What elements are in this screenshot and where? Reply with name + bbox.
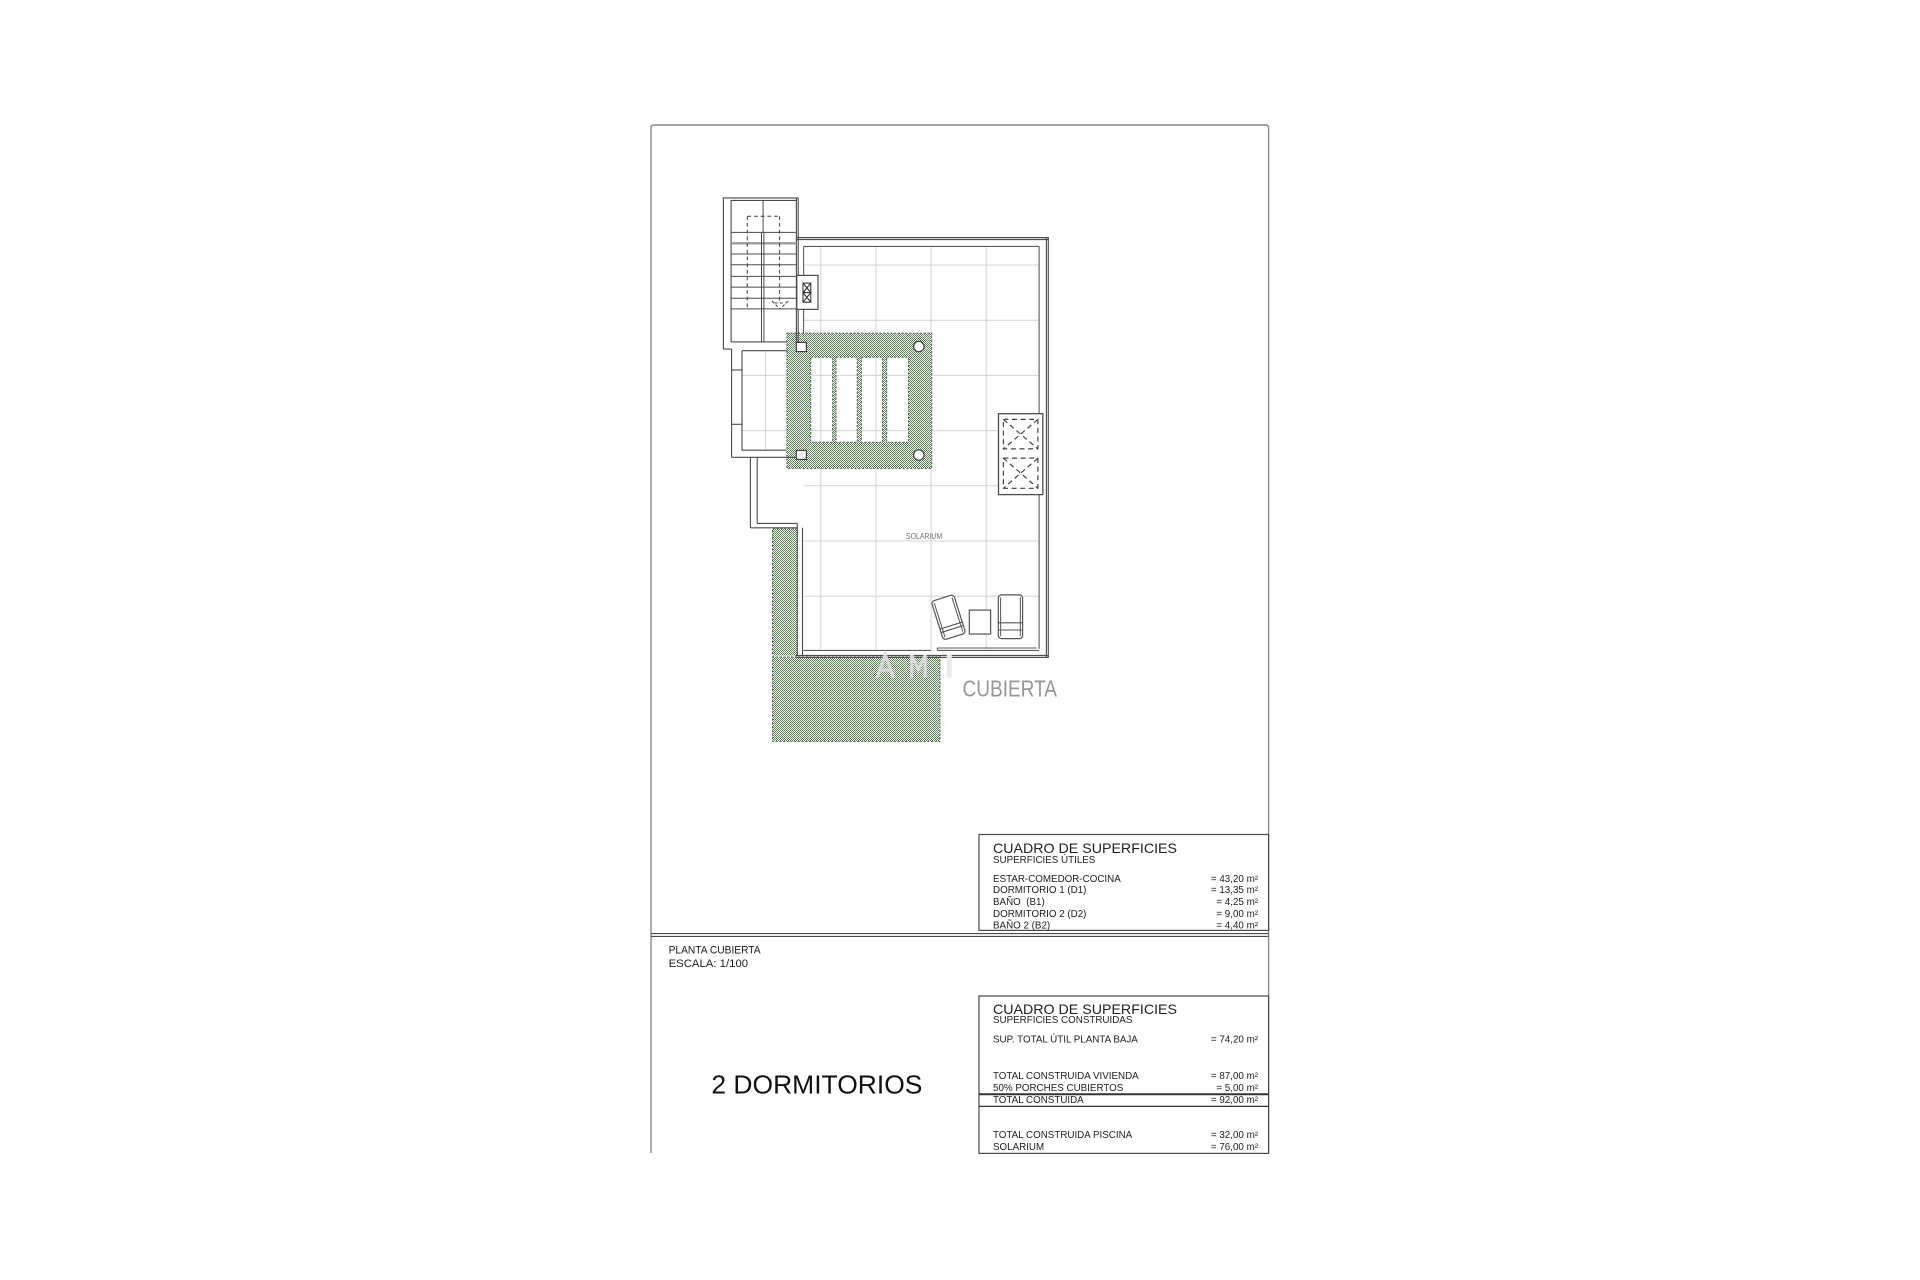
svg-text:50% PORCHES CUBIERTOS: 50% PORCHES CUBIERTOS <box>993 1083 1124 1094</box>
svg-text:= 43,20 m²: = 43,20 m² <box>1211 874 1259 885</box>
svg-text:SOLARIUM: SOLARIUM <box>993 1142 1044 1153</box>
svg-text:ESTAR-COMEDOR-COCINA: ESTAR-COMEDOR-COCINA <box>993 874 1121 885</box>
svg-text:BAÑO 2 (B2): BAÑO 2 (B2) <box>993 921 1050 932</box>
svg-text:BAÑO (B1): BAÑO (B1) <box>993 897 1045 908</box>
svg-text:SOLARIUM: SOLARIUM <box>906 532 942 541</box>
svg-text:DORMITORIO 1 (D1): DORMITORIO 1 (D1) <box>993 885 1086 896</box>
svg-text:PLANTA CUBIERTA: PLANTA CUBIERTA <box>669 945 761 957</box>
svg-text:TOTAL CONSTUIDA: TOTAL CONSTUIDA <box>993 1095 1084 1106</box>
svg-text:TOTAL CONSTRUIDA PISCINA: TOTAL CONSTRUIDA PISCINA <box>993 1130 1133 1141</box>
svg-text:2 DORMITORIOS: 2 DORMITORIOS <box>711 1070 922 1100</box>
svg-text:CUADRO DE SUPERFICIES: CUADRO DE SUPERFICIES <box>993 841 1177 856</box>
svg-text:SUPERFICIES CONSTRUIDAS: SUPERFICIES CONSTRUIDAS <box>993 1015 1133 1026</box>
svg-text:= 32,00 m²: = 32,00 m² <box>1211 1130 1259 1141</box>
svg-text:= 9,00 m²: = 9,00 m² <box>1216 909 1258 920</box>
svg-text:= 87,00 m²: = 87,00 m² <box>1211 1071 1259 1082</box>
svg-text:= 92,00 m²: = 92,00 m² <box>1211 1095 1259 1106</box>
svg-text:ESCALA: 1/100: ESCALA: 1/100 <box>669 958 749 970</box>
svg-text:= 74,20 m²: = 74,20 m² <box>1211 1034 1259 1045</box>
svg-text:TOTAL CONSTRUIDA VIVIENDA: TOTAL CONSTRUIDA VIVIENDA <box>993 1071 1139 1082</box>
svg-text:= 76,00 m²: = 76,00 m² <box>1211 1142 1259 1153</box>
svg-text:SUPERFICIES ÚTILES: SUPERFICIES ÚTILES <box>993 855 1096 866</box>
svg-text:SUP. TOTAL ÚTIL PLANTA BAJA: SUP. TOTAL ÚTIL PLANTA BAJA <box>993 1034 1138 1045</box>
svg-text:= 5,00 m²: = 5,00 m² <box>1216 1083 1258 1094</box>
svg-text:DORMITORIO 2 (D2): DORMITORIO 2 (D2) <box>993 909 1086 920</box>
svg-text:CUBIERTA: CUBIERTA <box>963 676 1058 702</box>
svg-text:= 13,35 m²: = 13,35 m² <box>1211 885 1259 896</box>
svg-text:= 4,25 m²: = 4,25 m² <box>1216 897 1258 908</box>
svg-text:= 4,40 m²: = 4,40 m² <box>1216 921 1258 932</box>
